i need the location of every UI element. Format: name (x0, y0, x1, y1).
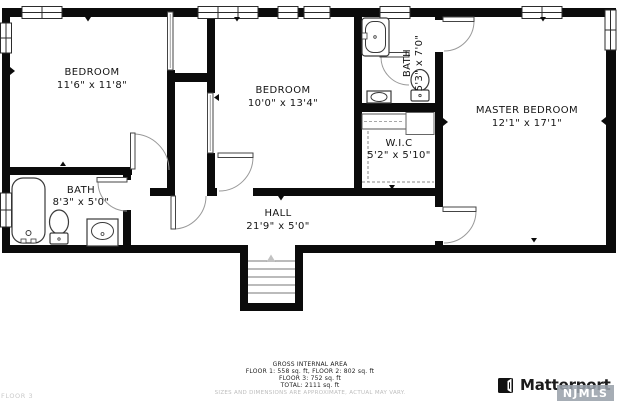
window (1, 193, 12, 227)
room-dimensions: 8'3" x 5'0" (21, 197, 141, 209)
window (380, 7, 410, 19)
room-dimensions: 12'1" x 17'1" (447, 117, 607, 130)
room-name: MASTER BEDROOM (447, 104, 607, 117)
room-name: HALL (218, 207, 338, 220)
gross-internal-area: GROSS INTERNAL AREA FLOOR 1: 558 sq. ft,… (160, 361, 460, 397)
room-label-bath-upper: BATH 5'3" x 7'0" (402, 23, 426, 103)
window (278, 7, 298, 19)
room-label-bedroom-1: BEDROOM 11'6" x 11'8" (32, 66, 152, 92)
staircase (248, 255, 295, 294)
door-hall-vestibule (171, 196, 206, 229)
sink-vanity-lower (87, 219, 118, 246)
njmls-watermark: NJMLS (557, 385, 614, 401)
room-label-hall: HALL 21'9" x 5'0" (218, 207, 338, 233)
door-master-bath (443, 17, 474, 51)
area-line-2: FLOOR 3: 752 sq. ft (160, 375, 460, 382)
window (605, 10, 616, 50)
shower-upper (362, 18, 389, 56)
room-label-bedroom-2: BEDROOM 10'0" x 13'4" (223, 84, 343, 110)
sink-upper (367, 91, 391, 103)
door-bedroom-2 (218, 153, 253, 191)
room-dimensions: 5'3" x 7'0" (414, 23, 426, 103)
room-dimensions: 11'6" x 11'8" (32, 79, 152, 92)
room-dimensions: 5'2" x 5'10" (339, 150, 459, 162)
area-line-3: TOTAL: 2111 sq. ft (160, 382, 460, 389)
door-master-hall (443, 207, 476, 243)
room-label-wic: W.I.C 5'2" x 5'10" (339, 138, 459, 162)
room-label-bath-lower: BATH 8'3" x 5'0" (21, 185, 141, 209)
closet-slider-bedroom-1 (168, 12, 174, 70)
room-label-master-bedroom: MASTER BEDROOM 12'1" x 17'1" (447, 104, 607, 130)
room-name: BEDROOM (32, 66, 152, 79)
window (198, 7, 258, 19)
room-name: BEDROOM (223, 84, 343, 97)
room-name: W.I.C (339, 138, 459, 150)
stairs-up-arrow (267, 255, 276, 263)
room-dimensions: 21'9" x 5'0" (218, 220, 338, 233)
room-name: BATH (21, 185, 141, 197)
room-dimensions: 10'0" x 13'4" (223, 97, 343, 110)
floor-plan-page: BEDROOM 11'6" x 11'8" BEDROOM 10'0" x 13… (0, 0, 625, 407)
disclaimer: SIZES AND DIMENSIONS ARE APPROXIMATE, AC… (160, 390, 460, 397)
window (522, 7, 562, 19)
window (1, 23, 12, 53)
area-line-1: FLOOR 1: 558 sq. ft, FLOOR 2: 802 sq. ft (160, 368, 460, 375)
area-title: GROSS INTERNAL AREA (160, 361, 460, 368)
matterport-icon (498, 377, 515, 394)
floor-number-label: FLOOR 3 (1, 392, 33, 400)
door-bedroom-1 (131, 133, 170, 170)
window (304, 7, 330, 19)
window (22, 7, 62, 19)
closet-slider-bedroom-2 (208, 93, 214, 153)
room-name: BATH (402, 23, 414, 103)
toilet-lower (50, 210, 69, 244)
walls (2, 8, 616, 311)
